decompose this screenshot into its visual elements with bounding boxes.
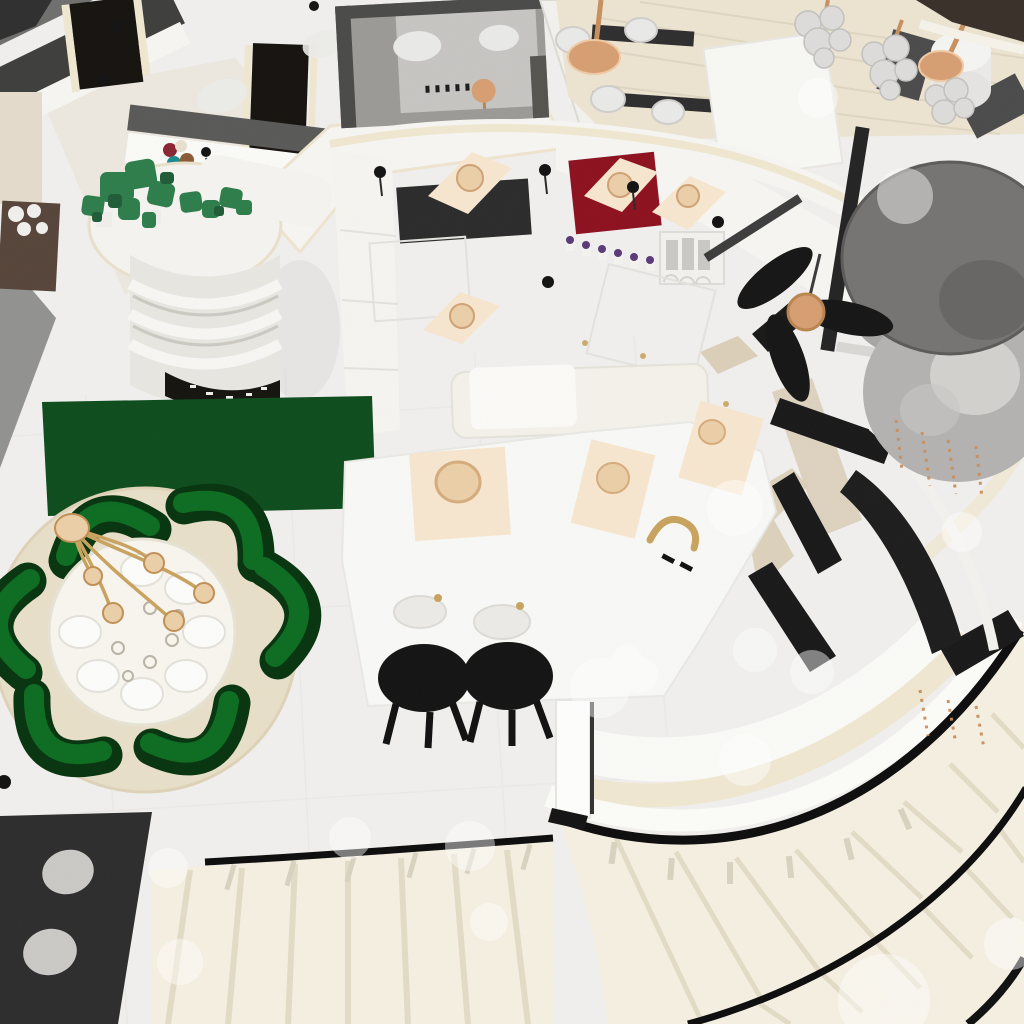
interior-render: Overhead 3D render of a two-storey luxur… [0, 0, 1024, 1024]
render-noise-overlay [0, 0, 1024, 1024]
render-canvas: Overhead 3D render of a two-storey luxur… [0, 0, 1024, 1024]
